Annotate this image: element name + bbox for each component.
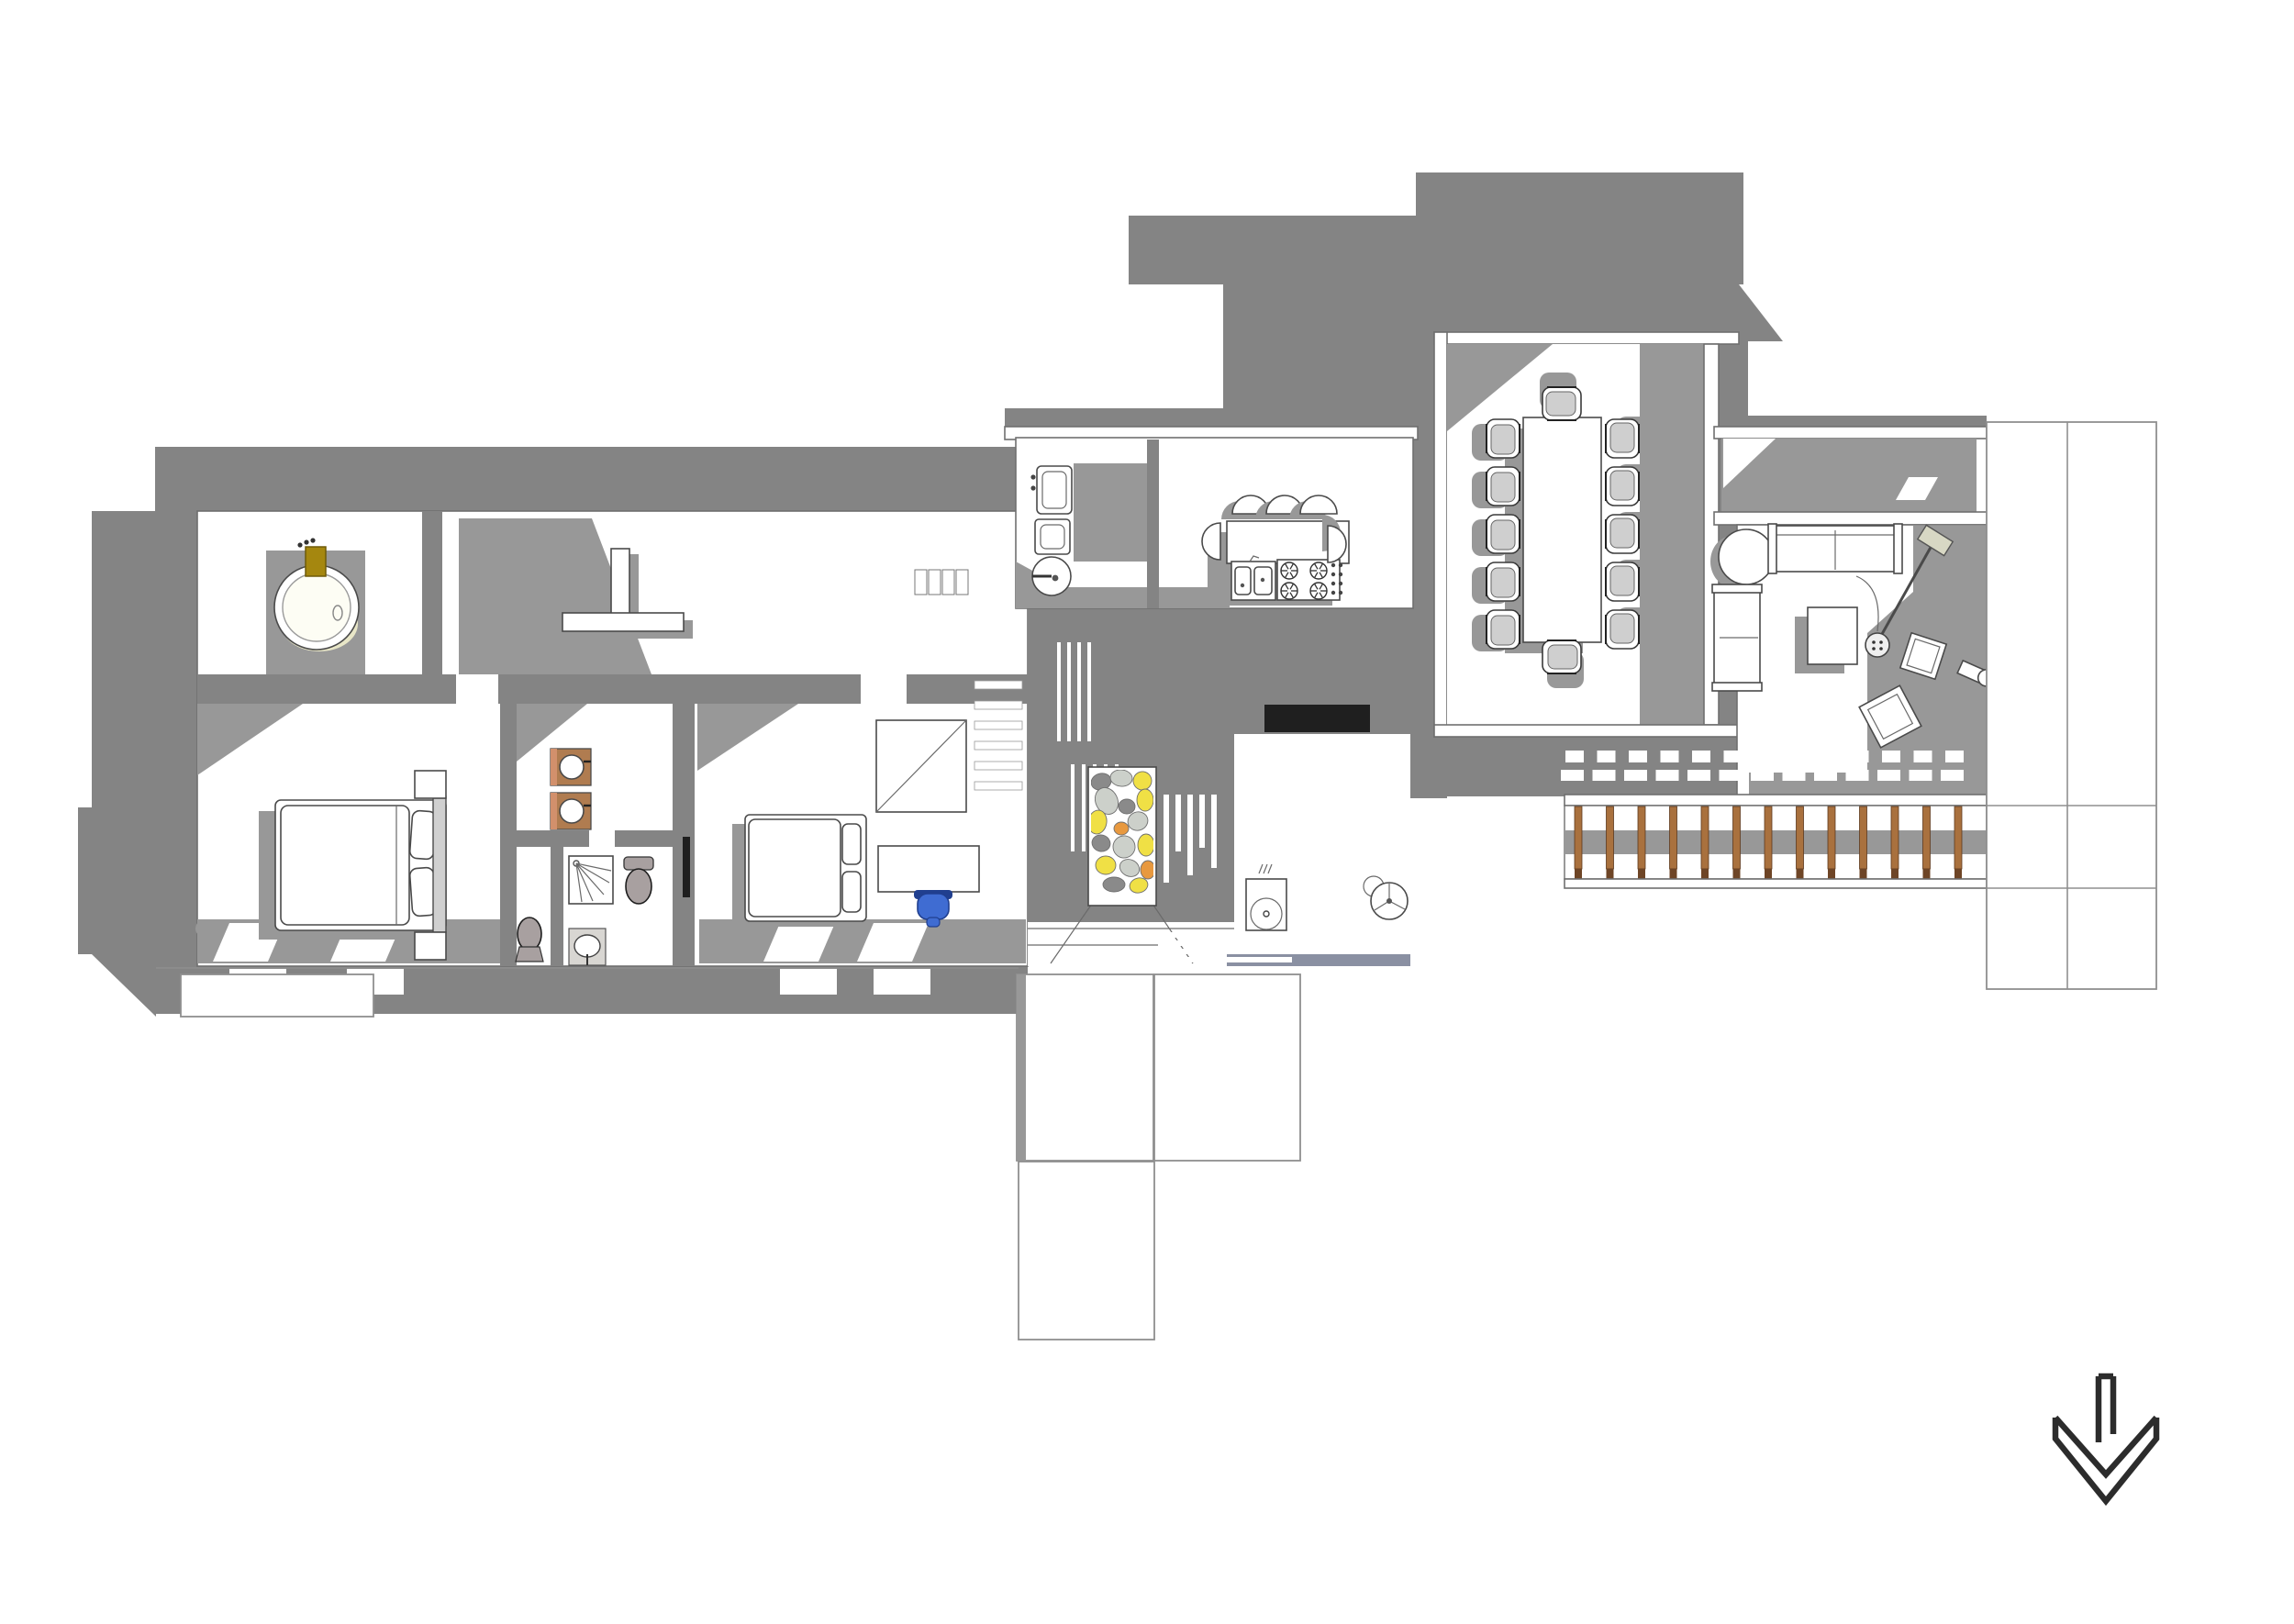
sink-counter-1-edge bbox=[551, 749, 557, 785]
glass-mullion bbox=[1057, 642, 1061, 741]
slat-light-dash bbox=[1593, 770, 1616, 781]
entry-step bbox=[942, 570, 954, 595]
left-wing bbox=[195, 511, 1055, 995]
patio-center-3 bbox=[1019, 1162, 1154, 1340]
dining-chair bbox=[1472, 467, 1520, 508]
kitchen-island bbox=[1202, 495, 1349, 606]
wall-bed2-courtyard bbox=[1028, 608, 1055, 966]
pergola-slat-tip bbox=[1860, 869, 1867, 879]
tub-tap-2 bbox=[1030, 485, 1035, 490]
slat-light-dash bbox=[1565, 751, 1584, 762]
toilet-2 bbox=[516, 918, 543, 962]
slat-light-dash bbox=[1692, 751, 1710, 762]
desk-bed2 bbox=[878, 846, 979, 892]
terrace-top-wall bbox=[1714, 427, 1987, 439]
basin-2 bbox=[560, 799, 584, 823]
arrow-shaft bbox=[2099, 1376, 2113, 1442]
pergola-slat-tip bbox=[1891, 869, 1899, 879]
slat-light-dash bbox=[1661, 751, 1679, 762]
roof-slab-top-right bbox=[1416, 172, 1743, 284]
nightstand-2 bbox=[415, 932, 446, 960]
dining-chair bbox=[1542, 640, 1584, 688]
stove bbox=[1277, 560, 1342, 600]
slat-light-dash bbox=[1598, 751, 1616, 762]
dining-chair bbox=[1606, 560, 1654, 601]
hall-step bbox=[1158, 957, 1292, 962]
glass-mullion bbox=[1087, 642, 1091, 741]
bean-bag bbox=[1138, 834, 1154, 856]
pivot-dot bbox=[195, 920, 212, 937]
pergola-slat bbox=[1765, 806, 1772, 869]
wall-bath-bed2 bbox=[673, 704, 695, 966]
slat-light-dash bbox=[1914, 751, 1932, 762]
door-gap-bed2 bbox=[861, 674, 907, 704]
pergola-slat bbox=[1607, 806, 1614, 869]
pergola-slat bbox=[1923, 806, 1931, 869]
pergola-slat-tip bbox=[1954, 869, 1962, 879]
slat-light-dash bbox=[1724, 751, 1743, 762]
living-top-wall bbox=[1714, 512, 1989, 525]
leftwing-left-wall bbox=[92, 511, 156, 954]
dining-table bbox=[1523, 417, 1601, 642]
dining-chair bbox=[1540, 373, 1581, 420]
slat-light-dash bbox=[1787, 751, 1806, 762]
bean-bag bbox=[1096, 856, 1116, 874]
gold-faucet bbox=[306, 547, 326, 576]
leftwing-diagonal-corner bbox=[92, 954, 156, 1017]
bean-bag bbox=[1114, 822, 1129, 835]
louver-slat bbox=[974, 782, 1022, 790]
wall-slat-shadow bbox=[1164, 795, 1169, 883]
slat-light-dash bbox=[1877, 770, 1900, 781]
pergola-slat-tip bbox=[1607, 869, 1614, 879]
door-gap-bath bbox=[589, 830, 615, 847]
wall-master-bath bbox=[500, 704, 517, 966]
bed2-pillow-1 bbox=[842, 824, 861, 864]
wall-slat-shadow bbox=[1187, 795, 1193, 875]
hall bbox=[1227, 705, 1410, 966]
papasan-chair bbox=[1719, 529, 1774, 584]
toilet-1 bbox=[624, 857, 653, 904]
wall-slat-shadow bbox=[1175, 795, 1181, 851]
dining-chair bbox=[1606, 512, 1654, 553]
bean-bag bbox=[1141, 861, 1155, 879]
slat-light-dash bbox=[1783, 770, 1806, 781]
slat-light-dash bbox=[1720, 770, 1743, 781]
dining-top-wall bbox=[1434, 332, 1739, 344]
pergola-slat-tip bbox=[1797, 869, 1804, 879]
headboard bbox=[433, 796, 446, 932]
glass-mullion bbox=[1077, 642, 1081, 741]
glass-mullion bbox=[1082, 764, 1086, 851]
compass-down-arrow bbox=[2055, 1376, 2156, 1501]
dining-room bbox=[1434, 332, 1748, 737]
bed2-mattress bbox=[749, 819, 841, 917]
entry-step bbox=[956, 570, 968, 595]
terrace bbox=[1714, 427, 1989, 525]
slat-light-dash bbox=[1882, 751, 1900, 762]
slat-light-dash bbox=[1656, 770, 1679, 781]
bean-bag bbox=[1119, 799, 1135, 814]
pergola-beam-top bbox=[1565, 795, 1987, 806]
door-gap-master bbox=[456, 674, 498, 704]
leftwing-top-band bbox=[155, 447, 762, 513]
faucet-knob-3 bbox=[310, 538, 315, 542]
dining-left-wall bbox=[1434, 332, 1447, 737]
slat-light-dash bbox=[1561, 770, 1584, 781]
pergola-slat-tip bbox=[1638, 869, 1645, 879]
pergola-slat-tip bbox=[1765, 869, 1772, 879]
slat-light-dash bbox=[1687, 770, 1710, 781]
patio-center-1 bbox=[1017, 974, 1153, 1161]
dining-bottom-wall bbox=[1434, 725, 1748, 737]
dining-chair bbox=[1472, 515, 1520, 556]
pergola-slat bbox=[1733, 806, 1741, 869]
hall-step bbox=[1158, 940, 1292, 946]
patio-left bbox=[181, 974, 373, 1017]
wall-slat-shadow bbox=[1199, 795, 1205, 848]
bean-bag bbox=[1137, 789, 1153, 811]
bathroom-tub-room bbox=[266, 538, 365, 674]
sofa-left bbox=[1712, 584, 1762, 691]
office-desk bbox=[562, 613, 684, 631]
shower bbox=[569, 856, 613, 904]
glass-mullion bbox=[1071, 764, 1075, 851]
slat-light-dash bbox=[1814, 770, 1837, 781]
faucet-knob-1 bbox=[297, 542, 302, 547]
slat-light-dash bbox=[1846, 770, 1869, 781]
sink-counter-2-edge bbox=[551, 793, 557, 829]
pergola-slat bbox=[1828, 806, 1835, 869]
floor-plan-canvas bbox=[0, 0, 2294, 1624]
leftwing-step-out bbox=[78, 807, 92, 954]
arrow-chevron bbox=[2055, 1418, 2156, 1501]
living-wing bbox=[1710, 427, 1998, 806]
louver-slat bbox=[974, 681, 1022, 689]
small-sink bbox=[569, 929, 606, 965]
basin-1 bbox=[560, 755, 584, 779]
pergola-slat bbox=[1670, 806, 1677, 869]
kitchen-wing bbox=[1005, 427, 1418, 608]
glass-mullion bbox=[1067, 642, 1071, 741]
dining-chair bbox=[1472, 419, 1520, 461]
pergola-slat bbox=[1638, 806, 1645, 869]
pergola-slat bbox=[1575, 806, 1582, 869]
patio-center-edge bbox=[1017, 974, 1026, 1161]
nightstand-1 bbox=[415, 771, 446, 798]
slat-light-dash bbox=[1819, 751, 1837, 762]
laundry-wall bbox=[1147, 439, 1159, 608]
hall-step bbox=[1158, 949, 1292, 954]
louver-slat bbox=[974, 762, 1022, 770]
laundry-shadow bbox=[1074, 463, 1147, 562]
bed2-pillow-2 bbox=[842, 872, 861, 912]
island-sink bbox=[1231, 556, 1275, 600]
sofa-top bbox=[1768, 524, 1902, 573]
slat-light-dash bbox=[1624, 770, 1647, 781]
patio-right bbox=[1987, 422, 2156, 989]
roof-block-mid bbox=[1223, 275, 1434, 409]
slat-light-dash bbox=[1910, 770, 1932, 781]
leftwing-inner-left bbox=[155, 511, 197, 1014]
entry-step bbox=[929, 570, 941, 595]
pergola-slat-tip bbox=[1923, 869, 1931, 879]
pergola-slat-tip bbox=[1670, 869, 1677, 879]
pergola-slat-tip bbox=[1575, 869, 1582, 879]
pergola-slat-tip bbox=[1701, 869, 1709, 879]
tv-hall bbox=[1264, 705, 1370, 732]
slat-light-dash bbox=[1755, 751, 1774, 762]
slat-light-dash bbox=[1629, 751, 1647, 762]
pergola-slat bbox=[1860, 806, 1867, 869]
slat-light-dash bbox=[1851, 751, 1869, 762]
slat-light-dash bbox=[1941, 770, 1964, 781]
pergola-slat bbox=[1797, 806, 1804, 869]
desk-stem bbox=[611, 549, 629, 617]
dining-chair bbox=[1472, 562, 1520, 604]
wall-bath-internal-v bbox=[551, 847, 563, 966]
roof-slab-top-left bbox=[1129, 216, 1422, 284]
floor-plan-page bbox=[0, 0, 2294, 1624]
slat-light-dash bbox=[1751, 770, 1774, 781]
louver-slat bbox=[974, 721, 1022, 729]
tv-bedroom2 bbox=[683, 837, 690, 897]
wall-slat-shadow bbox=[1211, 795, 1217, 868]
wall-tub-office bbox=[422, 511, 442, 674]
pergola bbox=[1561, 751, 1987, 888]
louver-slat bbox=[974, 741, 1022, 750]
pergola-slat bbox=[1954, 806, 1962, 869]
pergola-slat-tip bbox=[1733, 869, 1741, 879]
hall-step bbox=[1158, 932, 1292, 938]
pergola-slat bbox=[1701, 806, 1709, 869]
machine-hub bbox=[1052, 575, 1059, 582]
master-bed-mattress bbox=[281, 806, 409, 925]
dining-chair bbox=[1606, 464, 1654, 506]
coffee-table bbox=[1808, 607, 1857, 664]
dining-chair bbox=[1606, 607, 1654, 649]
dining-chair bbox=[1606, 417, 1654, 458]
bean-bag bbox=[1103, 877, 1125, 892]
dining-chair bbox=[1472, 610, 1520, 651]
pergola-slat bbox=[1891, 806, 1899, 869]
pergola-beam-bottom bbox=[1565, 879, 1987, 888]
slat-light-dash bbox=[1945, 751, 1964, 762]
pergola-slat-tip bbox=[1828, 869, 1835, 879]
faucet-knob-2 bbox=[304, 539, 308, 544]
louver-slat bbox=[974, 701, 1022, 709]
entry-step bbox=[915, 570, 927, 595]
tub-tap-1 bbox=[1030, 474, 1035, 479]
bean-bag-closet bbox=[1086, 767, 1156, 906]
patio-center-2 bbox=[1154, 974, 1300, 1161]
